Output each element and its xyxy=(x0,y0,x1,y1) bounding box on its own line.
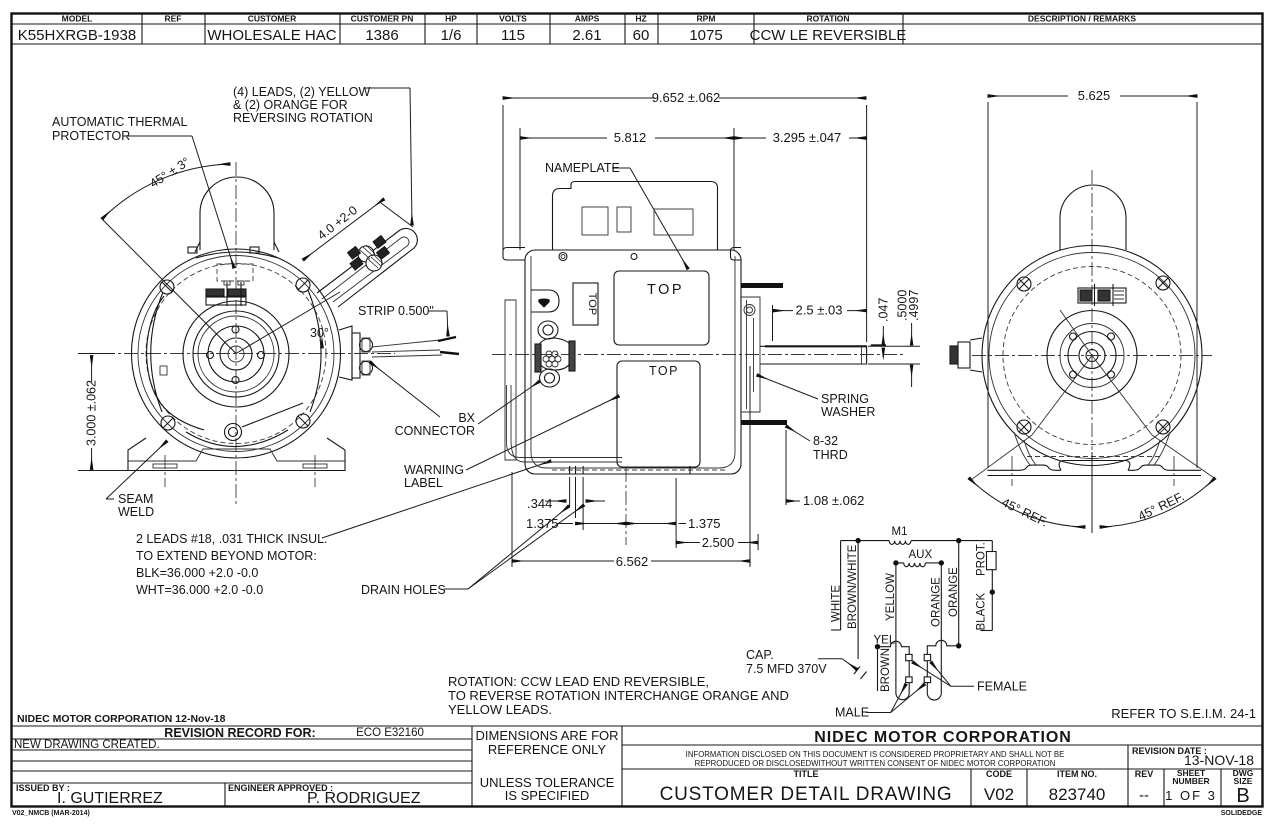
svg-text:2 LEADS #18, .031 THICK INSUL.: 2 LEADS #18, .031 THICK INSUL. xyxy=(136,532,328,546)
svg-text:THRD: THRD xyxy=(813,448,848,462)
svg-text:3.000 ±.062: 3.000 ±.062 xyxy=(85,380,99,446)
svg-text:FEMALE: FEMALE xyxy=(977,680,1027,694)
svg-text:IS SPECIFIED: IS SPECIFIED xyxy=(505,788,590,803)
svg-text:AMPS: AMPS xyxy=(575,14,600,24)
svg-text:WHOLESALE HAC: WHOLESALE HAC xyxy=(207,27,336,44)
svg-text:TOP: TOP xyxy=(649,364,679,378)
svg-text:PROTECTOR: PROTECTOR xyxy=(52,129,130,143)
svg-text:CODE: CODE xyxy=(986,769,1012,779)
svg-text:WHT=36.000 +2.0 -0.0: WHT=36.000 +2.0 -0.0 xyxy=(136,583,263,597)
svg-text:SPRING: SPRING xyxy=(821,392,869,406)
svg-text:BROWN/WHITE: BROWN/WHITE xyxy=(847,544,859,629)
svg-text:SOLIDEDGE: SOLIDEDGE xyxy=(1221,810,1263,817)
svg-text:K55HXRGB-1938: K55HXRGB-1938 xyxy=(18,27,136,44)
svg-text:ECO E32160: ECO E32160 xyxy=(356,727,424,739)
svg-text:NUMBER: NUMBER xyxy=(1172,776,1209,786)
svg-text:WASHER: WASHER xyxy=(821,405,875,419)
svg-text:2.500: 2.500 xyxy=(702,535,735,550)
svg-text:YELLOW LEADS.: YELLOW LEADS. xyxy=(448,702,552,717)
svg-text:TO REVERSE ROTATION INTERCHANG: TO REVERSE ROTATION INTERCHANGE ORANGE A… xyxy=(448,688,789,703)
svg-text:5.625: 5.625 xyxy=(1078,88,1111,103)
svg-text:2.61: 2.61 xyxy=(572,27,601,44)
svg-text:ROTATION: CCW LEAD END REVERSI: ROTATION: CCW LEAD END REVERSIBLE, xyxy=(448,674,709,689)
svg-text:LABEL: LABEL xyxy=(404,476,443,490)
svg-text:6.562: 6.562 xyxy=(616,554,649,569)
svg-text:1075: 1075 xyxy=(689,27,722,44)
svg-text:NEW DRAWING CREATED.: NEW DRAWING CREATED. xyxy=(14,739,160,751)
svg-text:STRIP 0.500": STRIP 0.500" xyxy=(358,304,434,318)
svg-text:ROTATION: ROTATION xyxy=(806,14,849,24)
svg-text:DESCRIPTION / REMARKS: DESCRIPTION / REMARKS xyxy=(1028,14,1136,24)
svg-text:2.5 ±.03: 2.5 ±.03 xyxy=(796,303,843,318)
svg-text:115: 115 xyxy=(501,27,525,44)
svg-text:CUSTOMER PN: CUSTOMER PN xyxy=(351,14,414,24)
svg-text:1 OF 3: 1 OF 3 xyxy=(1165,788,1217,803)
svg-text:13-NOV-18: 13-NOV-18 xyxy=(1184,752,1254,768)
svg-text:823740: 823740 xyxy=(1049,785,1106,804)
svg-text:REVISION RECORD FOR:: REVISION RECORD FOR: xyxy=(164,726,315,740)
svg-text:DIMENSIONS ARE FOR: DIMENSIONS ARE FOR xyxy=(475,728,618,743)
svg-text:8-32: 8-32 xyxy=(813,434,838,448)
svg-text:REF: REF xyxy=(165,14,182,24)
svg-text:BLK=36.000 +2.0 -0.0: BLK=36.000 +2.0 -0.0 xyxy=(136,566,258,580)
svg-text:45° REF.: 45° REF. xyxy=(1136,489,1187,523)
svg-text:V02: V02 xyxy=(984,785,1014,804)
svg-text:CCW LE REVERSIBLE: CCW LE REVERSIBLE xyxy=(750,27,907,44)
svg-text:CAP.: CAP. xyxy=(746,648,774,662)
svg-text:YELLOW: YELLOW xyxy=(885,573,897,621)
svg-text:BROWN: BROWN xyxy=(880,648,892,692)
svg-text:REFERENCE ONLY: REFERENCE ONLY xyxy=(488,742,607,757)
svg-text:CUSTOMER: CUSTOMER xyxy=(248,14,297,24)
svg-text:PROT.: PROT. xyxy=(976,542,988,576)
svg-text:CONNECTOR: CONNECTOR xyxy=(395,424,475,438)
svg-text:.4997: .4997 xyxy=(907,290,921,321)
svg-text:AUX: AUX xyxy=(909,549,933,561)
svg-text:45° ± 3°: 45° ± 3° xyxy=(147,155,192,191)
svg-text:60: 60 xyxy=(633,27,650,44)
svg-text:BLACK: BLACK xyxy=(976,592,988,630)
svg-text:MODEL: MODEL xyxy=(62,14,93,24)
svg-text:M1: M1 xyxy=(892,526,908,538)
svg-text:1/6: 1/6 xyxy=(441,27,462,44)
svg-text:3.295 ±.047: 3.295 ±.047 xyxy=(773,130,842,145)
svg-text:45° REF.: 45° REF. xyxy=(999,495,1050,529)
svg-text:4.0 +2-0: 4.0 +2-0 xyxy=(315,203,360,243)
svg-text:SEAM: SEAM xyxy=(118,492,153,506)
svg-text:1386: 1386 xyxy=(365,27,398,44)
svg-text:AUTOMATIC THERMAL: AUTOMATIC THERMAL xyxy=(52,115,187,129)
svg-text:I. GUTIERREZ: I. GUTIERREZ xyxy=(57,790,163,807)
svg-text:TOP: TOP xyxy=(647,282,684,298)
svg-text:VOLTS: VOLTS xyxy=(499,14,527,24)
svg-text:1.375: 1.375 xyxy=(688,516,721,531)
svg-text:& (2) ORANGE FOR: & (2) ORANGE FOR xyxy=(233,98,348,112)
svg-text:30°: 30° xyxy=(310,326,329,340)
svg-text:ORANGE: ORANGE xyxy=(948,567,960,617)
svg-text:V02_NMCB (MAR-2014): V02_NMCB (MAR-2014) xyxy=(12,810,90,817)
svg-text:REPRODUCED OR DISCLOSEDWITHOUT: REPRODUCED OR DISCLOSEDWITHOUT WRITTEN C… xyxy=(695,759,1056,768)
svg-text:WHITE: WHITE xyxy=(831,585,843,622)
svg-text:(4) LEADS, (2) YELLOW: (4) LEADS, (2) YELLOW xyxy=(233,85,371,99)
svg-text:5.812: 5.812 xyxy=(614,130,647,145)
svg-text:1.08 ±.062: 1.08 ±.062 xyxy=(803,493,864,508)
svg-text:B: B xyxy=(1236,785,1249,807)
svg-text:RPM: RPM xyxy=(697,14,716,24)
svg-text:DRAIN HOLES: DRAIN HOLES xyxy=(361,583,446,597)
svg-text:.344: .344 xyxy=(527,496,552,511)
svg-text:MALE: MALE xyxy=(835,706,869,720)
svg-text:REV: REV xyxy=(1135,769,1154,779)
svg-text:WELD: WELD xyxy=(118,505,154,519)
svg-text:7.5 MFD 370V: 7.5 MFD 370V xyxy=(746,662,827,676)
svg-text:REFER TO S.E.I.M. 24-1: REFER TO S.E.I.M. 24-1 xyxy=(1111,706,1256,721)
svg-text:REVERSING ROTATION: REVERSING ROTATION xyxy=(233,111,373,125)
svg-text:9.652 ±.062: 9.652 ±.062 xyxy=(652,90,721,105)
svg-text:--: -- xyxy=(1139,787,1149,804)
svg-text:ORANGE: ORANGE xyxy=(931,577,943,627)
svg-text:NAMEPLATE: NAMEPLATE xyxy=(545,161,620,175)
svg-text:WARNING: WARNING xyxy=(404,463,464,477)
svg-text:TITLE: TITLE xyxy=(794,769,819,779)
svg-text:TOP: TOP xyxy=(586,293,598,315)
svg-text:1.375: 1.375 xyxy=(526,516,559,531)
svg-text:ITEM NO.: ITEM NO. xyxy=(1057,769,1097,779)
svg-text:BX: BX xyxy=(458,411,475,425)
svg-text:HZ: HZ xyxy=(635,14,646,24)
svg-text:TO EXTEND BEYOND MOTOR:: TO EXTEND BEYOND MOTOR: xyxy=(136,549,317,563)
svg-text:HP: HP xyxy=(445,14,457,24)
svg-text:NIDEC MOTOR CORPORATION 12-Nov: NIDEC MOTOR CORPORATION 12-Nov-18 xyxy=(17,713,226,725)
svg-text:INFORMATION DISCLOSED ON THIS: INFORMATION DISCLOSED ON THIS DOCUMENT I… xyxy=(686,750,1065,759)
svg-text:.047: .047 xyxy=(877,298,891,322)
svg-text:NIDEC MOTOR CORPORATION: NIDEC MOTOR CORPORATION xyxy=(814,729,1071,746)
svg-text:YEL: YEL xyxy=(874,635,896,647)
svg-text:CUSTOMER DETAIL DRAWING: CUSTOMER DETAIL DRAWING xyxy=(660,784,953,805)
svg-text:P. RODRIGUEZ: P. RODRIGUEZ xyxy=(307,790,421,807)
